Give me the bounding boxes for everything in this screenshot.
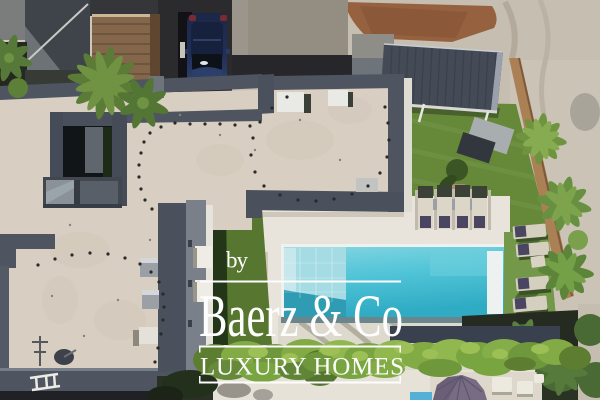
svg-text:LUXURY HOMES: LUXURY HOMES <box>200 354 404 381</box>
svg-text:Baerz & Co: Baerz & Co <box>199 283 403 349</box>
svg-text:by: by <box>226 248 249 273</box>
